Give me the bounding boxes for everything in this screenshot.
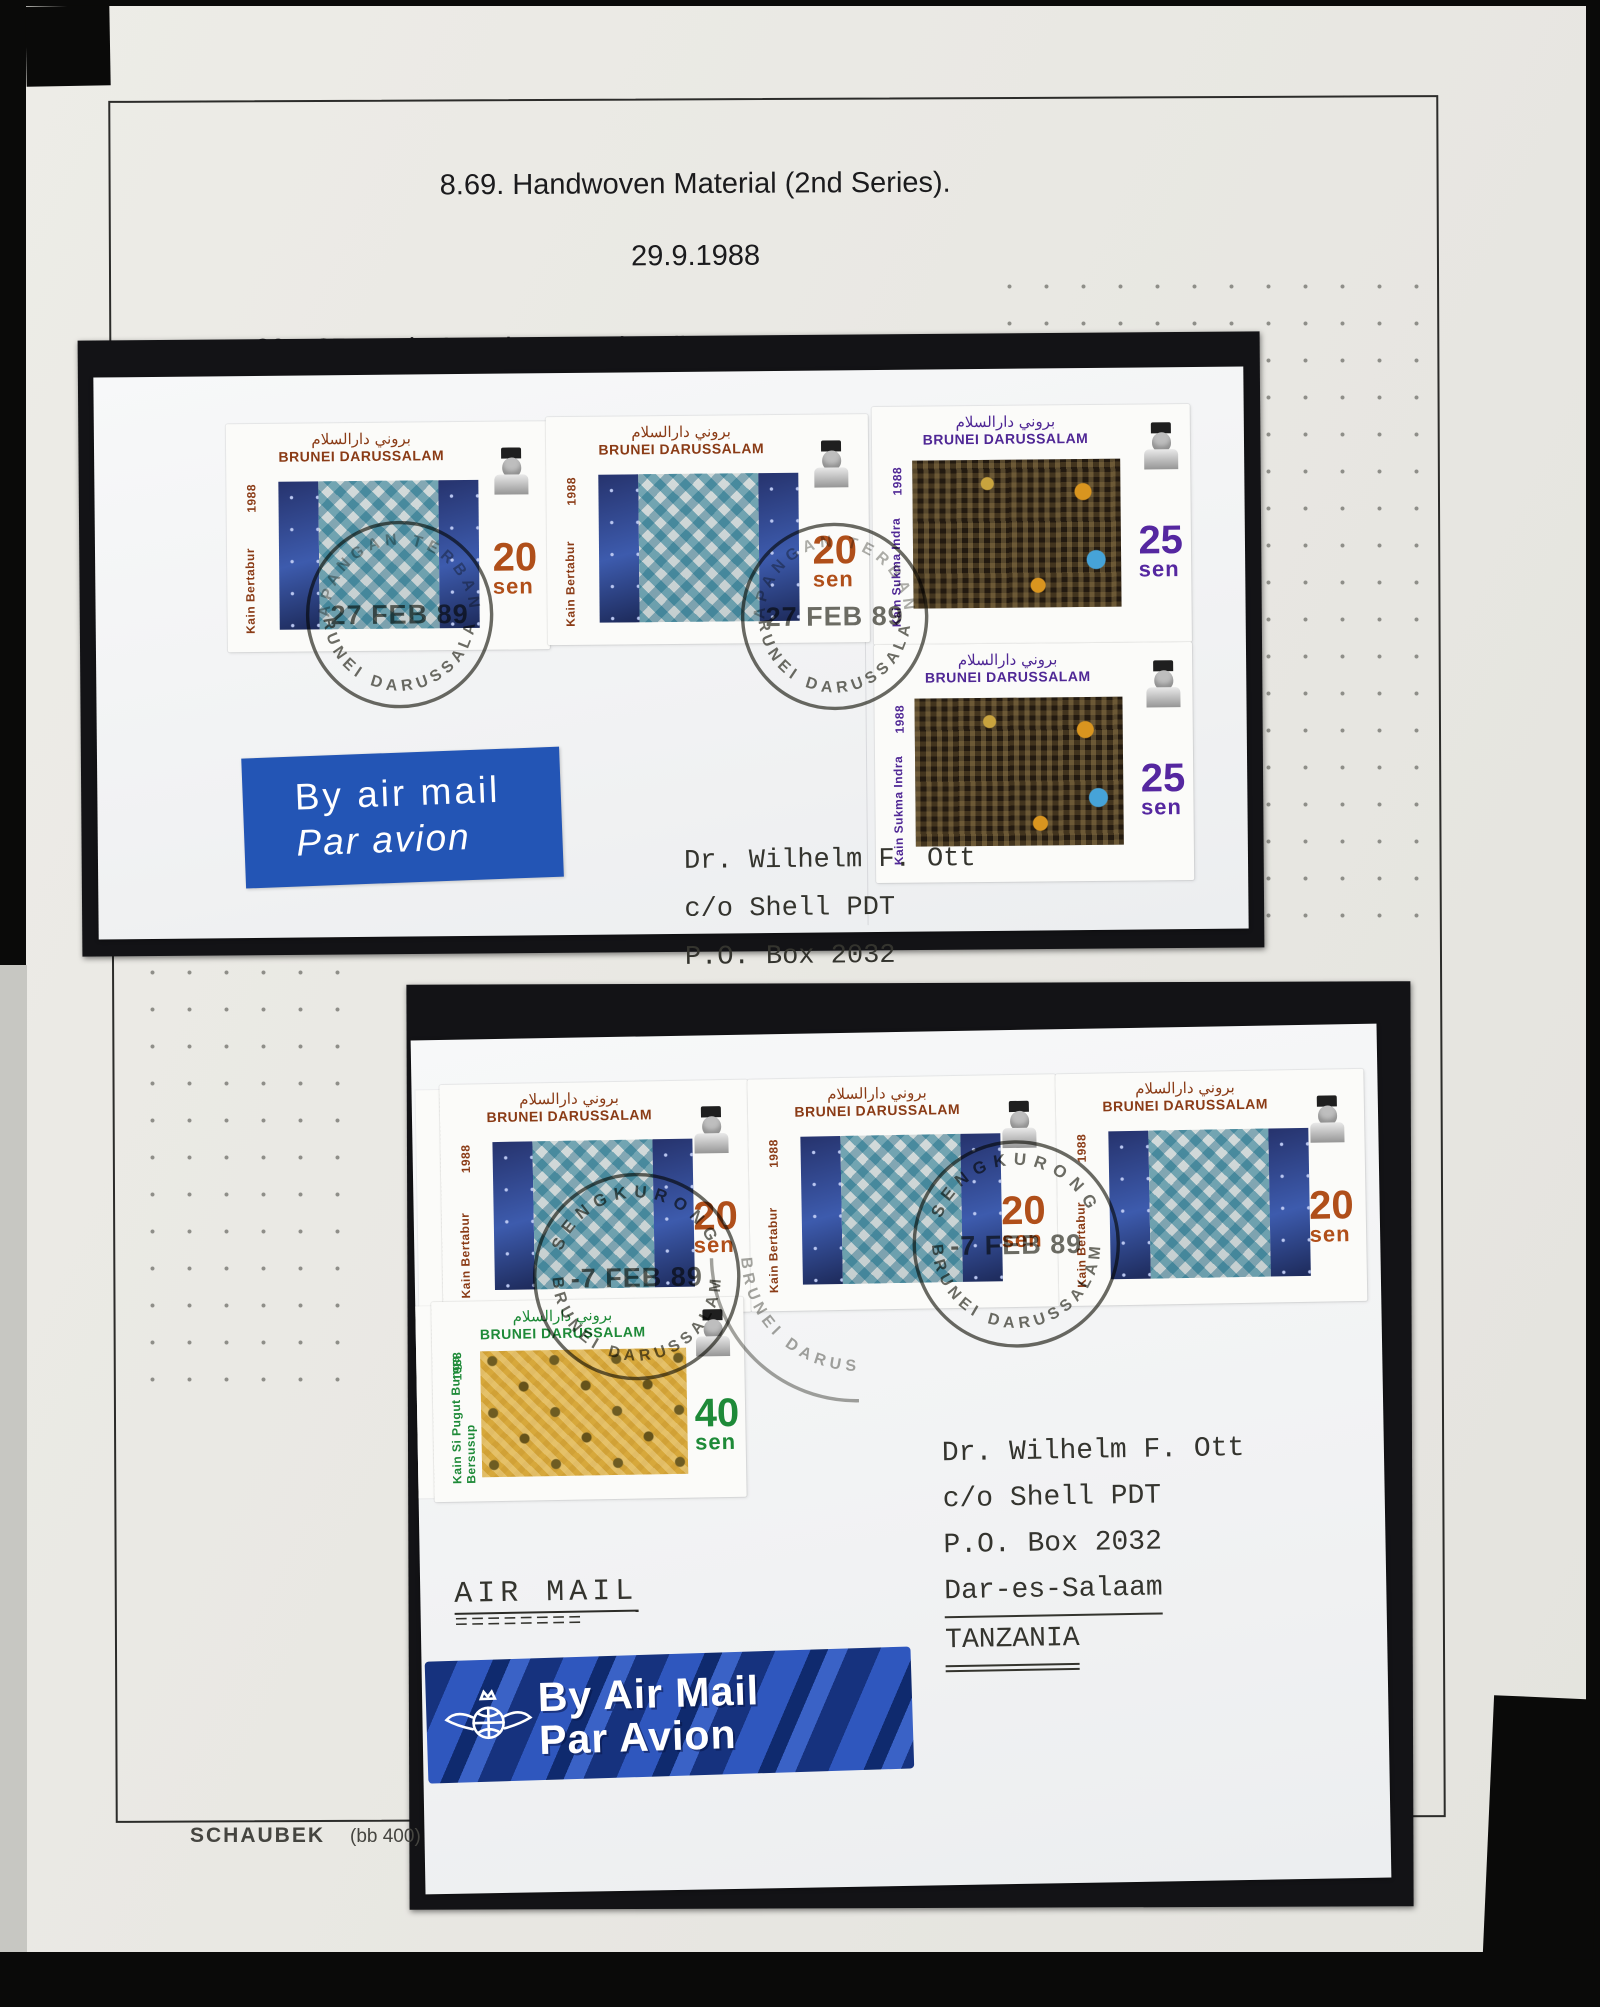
sultan-portrait [1144,422,1178,469]
address-city: Dar-es-Salaam [944,1565,1163,1618]
stamp-arabic-inscription: بروني دارالسلام [578,423,784,442]
airmail-label-english: By air mail [294,767,561,819]
svg-text:27 FEB 89: 27 FEB 89 [765,601,903,632]
sultan-portrait [1310,1095,1345,1143]
typed-underline: ======== [455,1614,639,1631]
recipient-address: Dr. Wilhelm F. Ott c/o Shell PDT P.O. Bo… [942,1426,1249,1672]
quadrille-dots-left [128,948,342,1394]
stamp-country-name: BRUNEI DARUSSALAM [578,440,784,458]
stamp-design-name: Kain Bertabur [563,541,578,627]
stamp-country-name: BRUNEI DARUSSALAM [258,447,464,465]
photo-black-corner-bottom-right [1483,1695,1600,1960]
address-line: P.O. Box 2032 [943,1518,1246,1569]
stamp-denomination: 25sen [1138,522,1183,579]
stamp-design-name: Kain Bertabur [243,548,258,634]
airmail-label-french: Par Avion [538,1712,761,1762]
address-line: P.O. Box 2032 [685,931,977,982]
stamp-year: 1988 [244,484,258,513]
airmail-cover-bottom: بروني دارالسلام BRUNEI DARUSSALAM 1988 K… [411,1024,1392,1895]
postmark-lapangan-terbang: LAPANGAN TERBANG 27 FEB 89 BRUNEI DARUSS… [724,505,946,727]
album-page-photo: 8.69. Handwoven Material (2nd Series). 2… [0,0,1600,2007]
airmail-etiquette-label: By Air Mail Par Avion [425,1646,915,1783]
woven-fabric-image [914,697,1123,847]
underlying-page-edge [0,965,27,1952]
address-line: Dr. Wilhelm F. Ott [942,1426,1245,1477]
stamp-year: 1988 [890,467,904,496]
airmail-etiquette-label: By air mail Par avion [241,747,564,889]
stamp-design-name: Kain Si Pugut Bunga Bersusup [448,1355,478,1484]
stamp-denomination: 25sen [1141,760,1186,817]
airmail-typed-note: AIR MAIL ======== [454,1575,639,1631]
stamp-country-name: BRUNEI DARUSSALAM [471,1106,668,1125]
stamp-country-name: BRUNEI DARUSSALAM [904,430,1108,448]
svg-text:BRUNEI DARUSSALAM: BRUNEI DARUSSALAM [694,1103,862,1378]
stamp-arabic-inscription: بروني دارالسلام [904,413,1108,432]
stamp-year: 1988 [564,477,578,506]
winged-globe-crown-icon [441,1683,535,1758]
stamp-country-name: BRUNEI DARUSSALAM [1087,1095,1284,1114]
woven-fabric-image [1108,1128,1311,1279]
airmail-cover-top: بروني دارالسلام BRUNEI DARUSSALAM 1988 K… [93,366,1248,939]
svg-text:27 FEB 89: 27 FEB 89 [330,599,468,630]
postmark-partial-arc: BRUNEI DARUSSALAM [694,1103,1019,1409]
address-line: c/o Shell PDT [684,883,976,934]
address-line: Dr. Wilhelm F. Ott [684,835,976,886]
album-brand: SCHAUBEK [190,1824,325,1848]
stamp-year: 1988 [458,1144,472,1173]
address-line: c/o Shell PDT [942,1472,1245,1523]
stamp-arabic-inscription: بروني دارالسلام [258,430,464,449]
stamp-denomination: 20sen [1309,1187,1354,1245]
sultan-portrait [1146,660,1180,707]
address-country: TANZANIA [945,1616,1080,1672]
recipient-address: Dr. Wilhelm F. Ott c/o Shell PDT P.O. Bo… [684,835,977,982]
sultan-portrait [814,440,848,487]
stamp-design-name: Kain Bertabur [458,1213,473,1299]
sultan-portrait [494,447,528,494]
airmail-label-french: Par avion [296,813,563,865]
photo-black-corner-top-left [25,5,110,86]
album-page-reference: (bb 400) [350,1826,421,1848]
header-title: 8.69. Handwoven Material (2nd Series). [115,163,1275,205]
svg-text:-7 FEB 89: -7 FEB 89 [571,1261,704,1293]
postmark-lapangan-terbang: LAPANGAN TERBANG 27 FEB 89 BRUNEI DARUSS… [289,504,511,726]
